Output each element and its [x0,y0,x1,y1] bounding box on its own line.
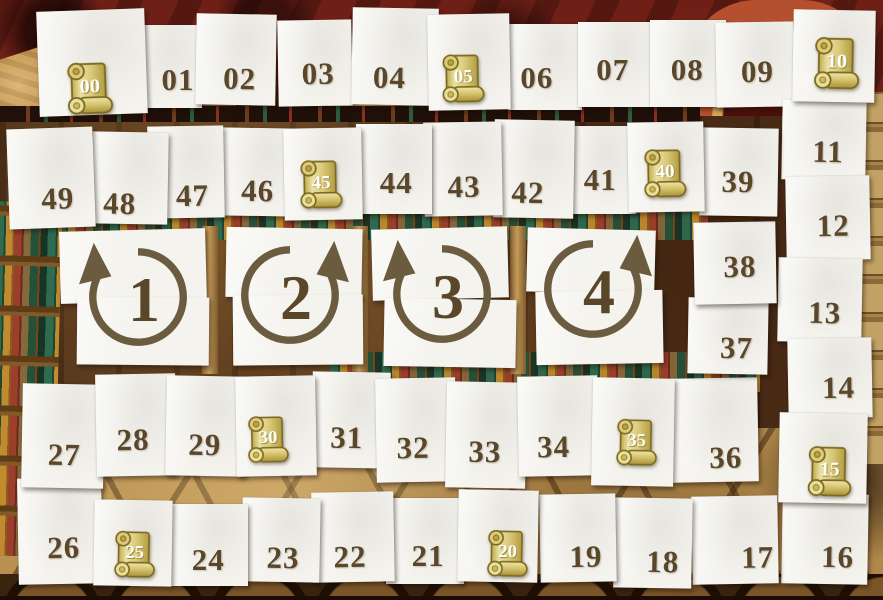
scroll-number: 20 [498,542,517,562]
tile-number: 41 [584,162,617,198]
board-tile-02[interactable]: 02 [195,13,277,105]
tile-number: 14 [822,369,856,406]
board-tile-10[interactable]: 10 10 [792,9,876,102]
board-tile-39[interactable]: 39 [699,127,779,216]
tile-number: 03 [301,56,335,93]
scroll-number: 40 [656,161,675,182]
board-tile-38[interactable]: 38 [693,221,776,304]
scroll-marker-icon: 10 10 [807,34,868,95]
tile-number: 47 [176,178,210,215]
tile-number: 16 [821,539,855,576]
board-tile-19[interactable]: 19 [539,493,617,582]
round-number: 1 [128,263,160,337]
board-tile-00[interactable]: 00 00 [36,8,148,117]
board-tile-24[interactable]: 24 [170,504,248,586]
tile-number: 27 [47,436,81,473]
tile-number: 08 [671,52,704,88]
board-tile-15[interactable]: 15 15 [778,412,868,504]
tile-number: 24 [192,542,225,578]
scroll-marker-icon: 00 00 [59,58,121,120]
tile-number: 33 [468,434,502,471]
board-tile-40[interactable]: 40 40 [627,121,705,212]
tile-number: 36 [709,440,743,477]
scroll-marker-icon: 25 25 [108,528,163,583]
scroll-number: 05 [454,67,473,88]
game-board: 00 00 01020304 05 05 06070809 [0,0,883,600]
scroll-marker-icon: 20 20 [480,527,535,582]
board-tile-37[interactable]: 37 [687,297,768,374]
board-tile-11[interactable]: 11 [781,99,866,180]
tile-number: 22 [333,539,367,576]
tile-number: 06 [520,60,553,96]
board-tile-35[interactable]: 35 35 [591,377,675,486]
tile-number: 42 [511,174,545,211]
board-tile-21[interactable]: 21 [386,498,464,584]
board-tile-45[interactable]: 45 45 [283,127,363,220]
tile-number: 39 [721,163,755,200]
board-tile-03[interactable]: 03 [277,19,352,106]
tile-number: 49 [41,180,75,217]
tile-number: 38 [723,249,757,286]
tile-number: 34 [537,429,571,466]
tile-number: 19 [569,539,603,576]
scroll-number: 35 [628,430,647,450]
round-number: 2 [280,261,312,335]
tile-number: 13 [808,295,842,332]
board-tile-25[interactable]: 25 25 [93,499,172,586]
board-tile-13[interactable]: 13 [777,257,862,342]
round-number: 3 [432,260,464,334]
tile-number: 37 [720,330,754,367]
tile-number: 32 [396,429,430,466]
board-tile-27[interactable]: 27 [21,383,105,488]
board-tile-12[interactable]: 12 [785,175,870,260]
scroll-number: 45 [311,172,330,193]
scroll-marker-icon: 05 05 [435,51,492,108]
board-tile-30[interactable]: 30 30 [235,375,317,476]
scroll-marker-icon: 45 45 [292,157,349,214]
board-tile-17[interactable]: 17 [691,495,779,584]
tile-number: 26 [47,530,81,567]
board-tile-14[interactable]: 14 [787,337,872,418]
board-tile-49[interactable]: 49 [6,127,95,230]
tile-number: 43 [447,169,481,206]
tile-number: 31 [330,420,364,457]
tile-number: 44 [380,165,413,201]
board-tile-23[interactable]: 23 [241,497,320,582]
scroll-marker-icon: 30 30 [241,413,296,468]
scroll-marker-icon: 15 15 [800,442,859,501]
scroll-number: 25 [126,542,145,562]
tile-number: 18 [646,544,680,581]
tile-number: 46 [241,173,275,210]
tile-number: 28 [116,422,150,459]
tile-number: 17 [741,540,775,577]
board-tile-26[interactable]: 26 [17,477,103,584]
board-tile-44[interactable]: 44 [356,124,432,214]
tile-number: 09 [741,54,775,91]
board-tile-43[interactable]: 43 [423,121,503,216]
tile-number: 21 [412,538,445,574]
tile-number: 07 [596,52,629,88]
round-number: 4 [583,255,615,329]
tile-number: 48 [103,185,137,222]
board-tile-34[interactable]: 34 [517,375,599,476]
scroll-marker-icon: 40 40 [637,146,694,203]
scroll-number: 15 [820,458,840,480]
tile-number: 04 [373,59,407,96]
tile-number: 01 [162,62,195,98]
board-tile-07[interactable]: 07 [578,22,652,107]
board-tile-04[interactable]: 04 [351,7,439,105]
board-tile-36[interactable]: 36 [671,377,759,482]
board-tile-09[interactable]: 09 [715,21,794,107]
scroll-number: 00 [79,75,100,98]
board-tile-33[interactable]: 33 [445,381,527,488]
scroll-number: 30 [259,427,278,447]
board-tile-48[interactable]: 48 [91,131,169,224]
score-track: 00 00 01020304 05 05 06070809 [0,0,883,600]
tile-number: 29 [188,427,222,464]
tile-number: 12 [816,208,850,245]
board-tile-18[interactable]: 18 [613,497,693,588]
tile-number: 23 [266,539,300,576]
tile-number: 02 [223,60,257,97]
board-tile-42[interactable]: 42 [493,119,575,218]
scroll-number: 10 [827,51,848,73]
board-tile-16[interactable]: 16 [781,493,869,584]
scroll-marker-icon: 35 35 [609,415,664,470]
board-tile-05[interactable]: 05 05 [427,13,511,110]
tile-number: 11 [812,134,844,171]
board-tile-20[interactable]: 20 20 [457,489,539,582]
board-tile-22[interactable]: 22 [311,491,395,582]
board-tile-06[interactable]: 06 [508,24,582,110]
